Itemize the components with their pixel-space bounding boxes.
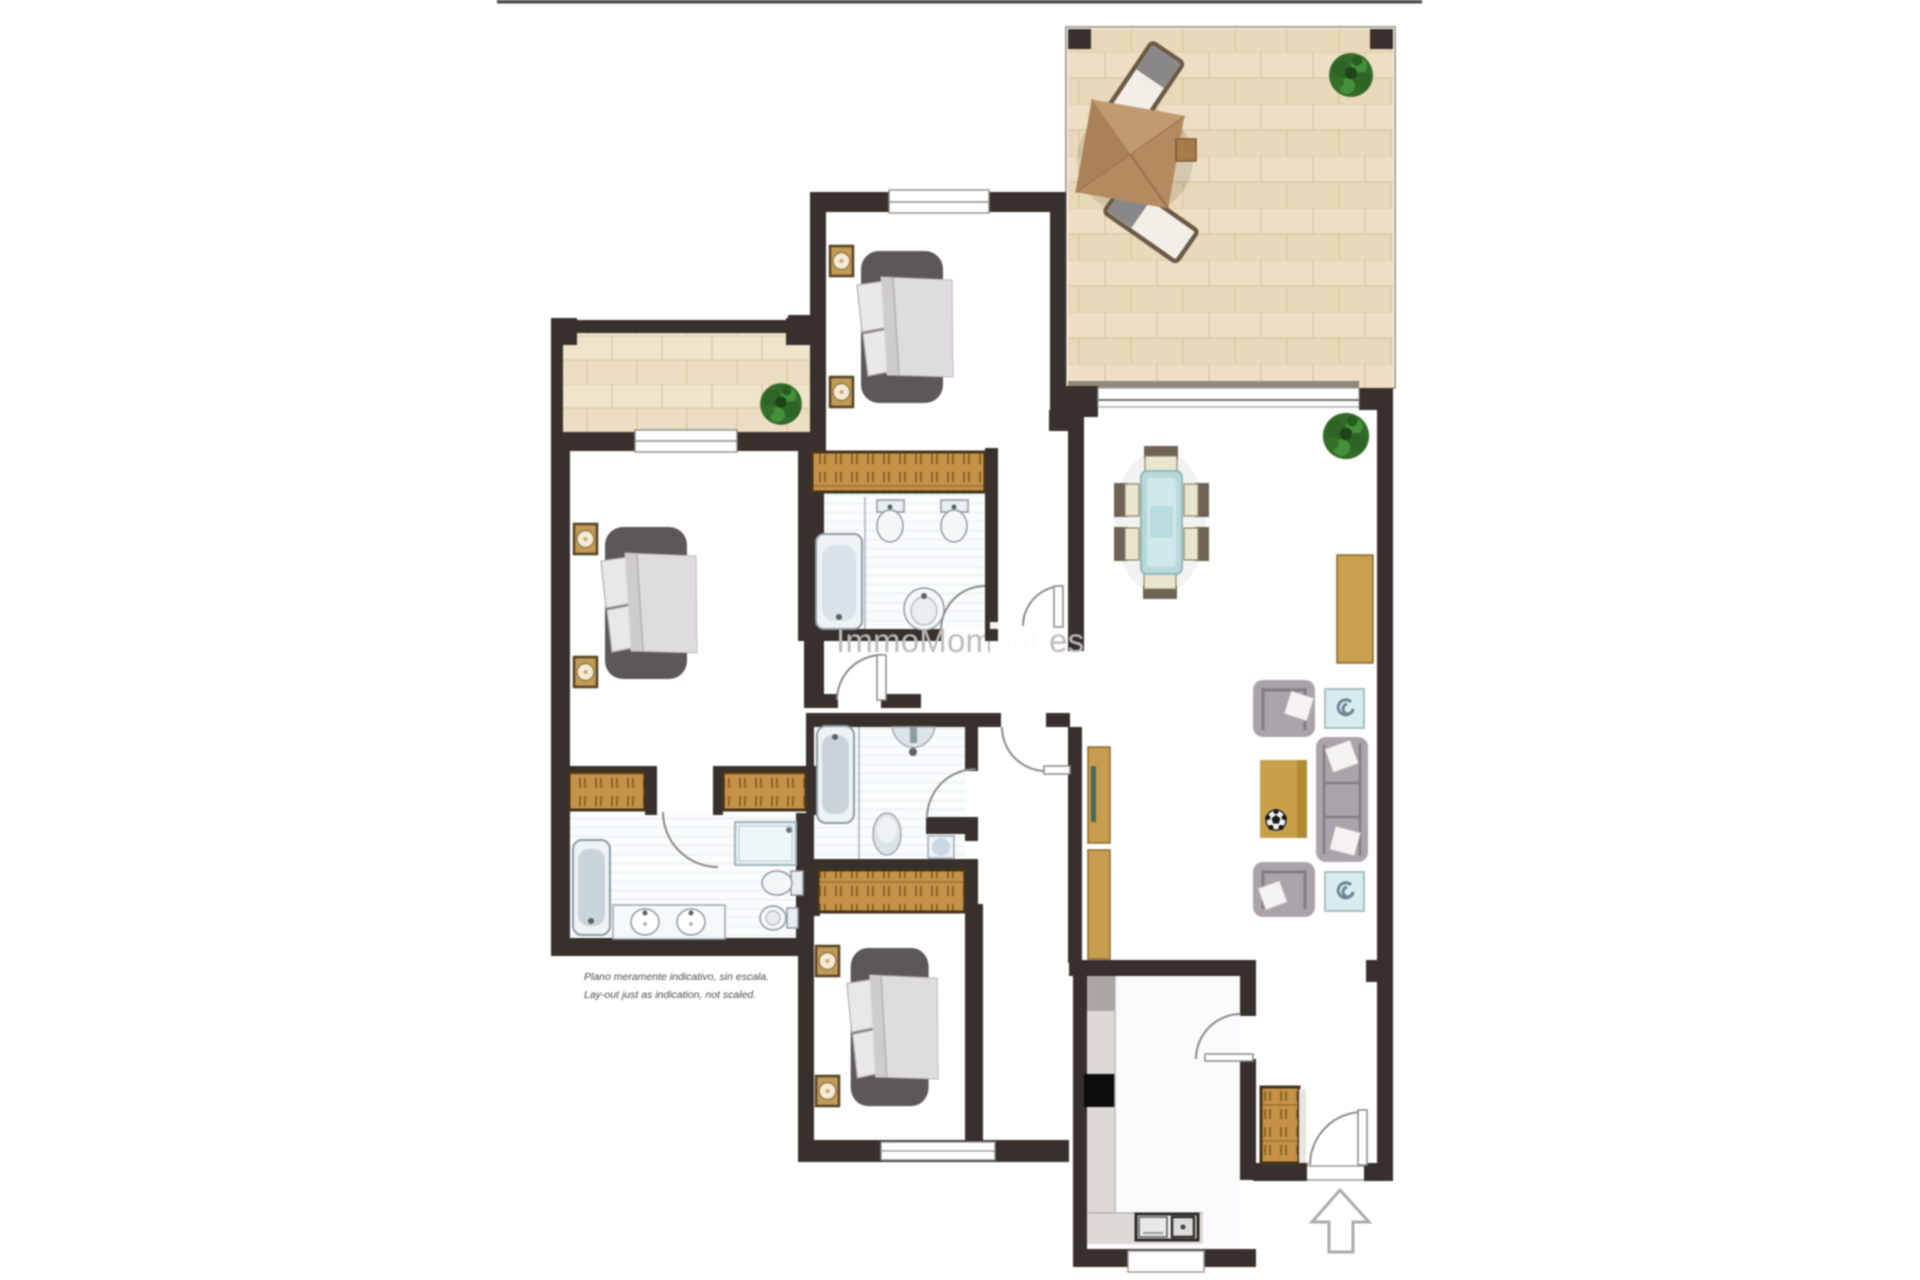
svg-text:Plano meramente indicativo, si: Plano meramente indicativo, sin escala. — [584, 971, 769, 983]
svg-text:Lay-out just as indication, no: Lay-out just as indication, not scaled. — [584, 989, 756, 1001]
